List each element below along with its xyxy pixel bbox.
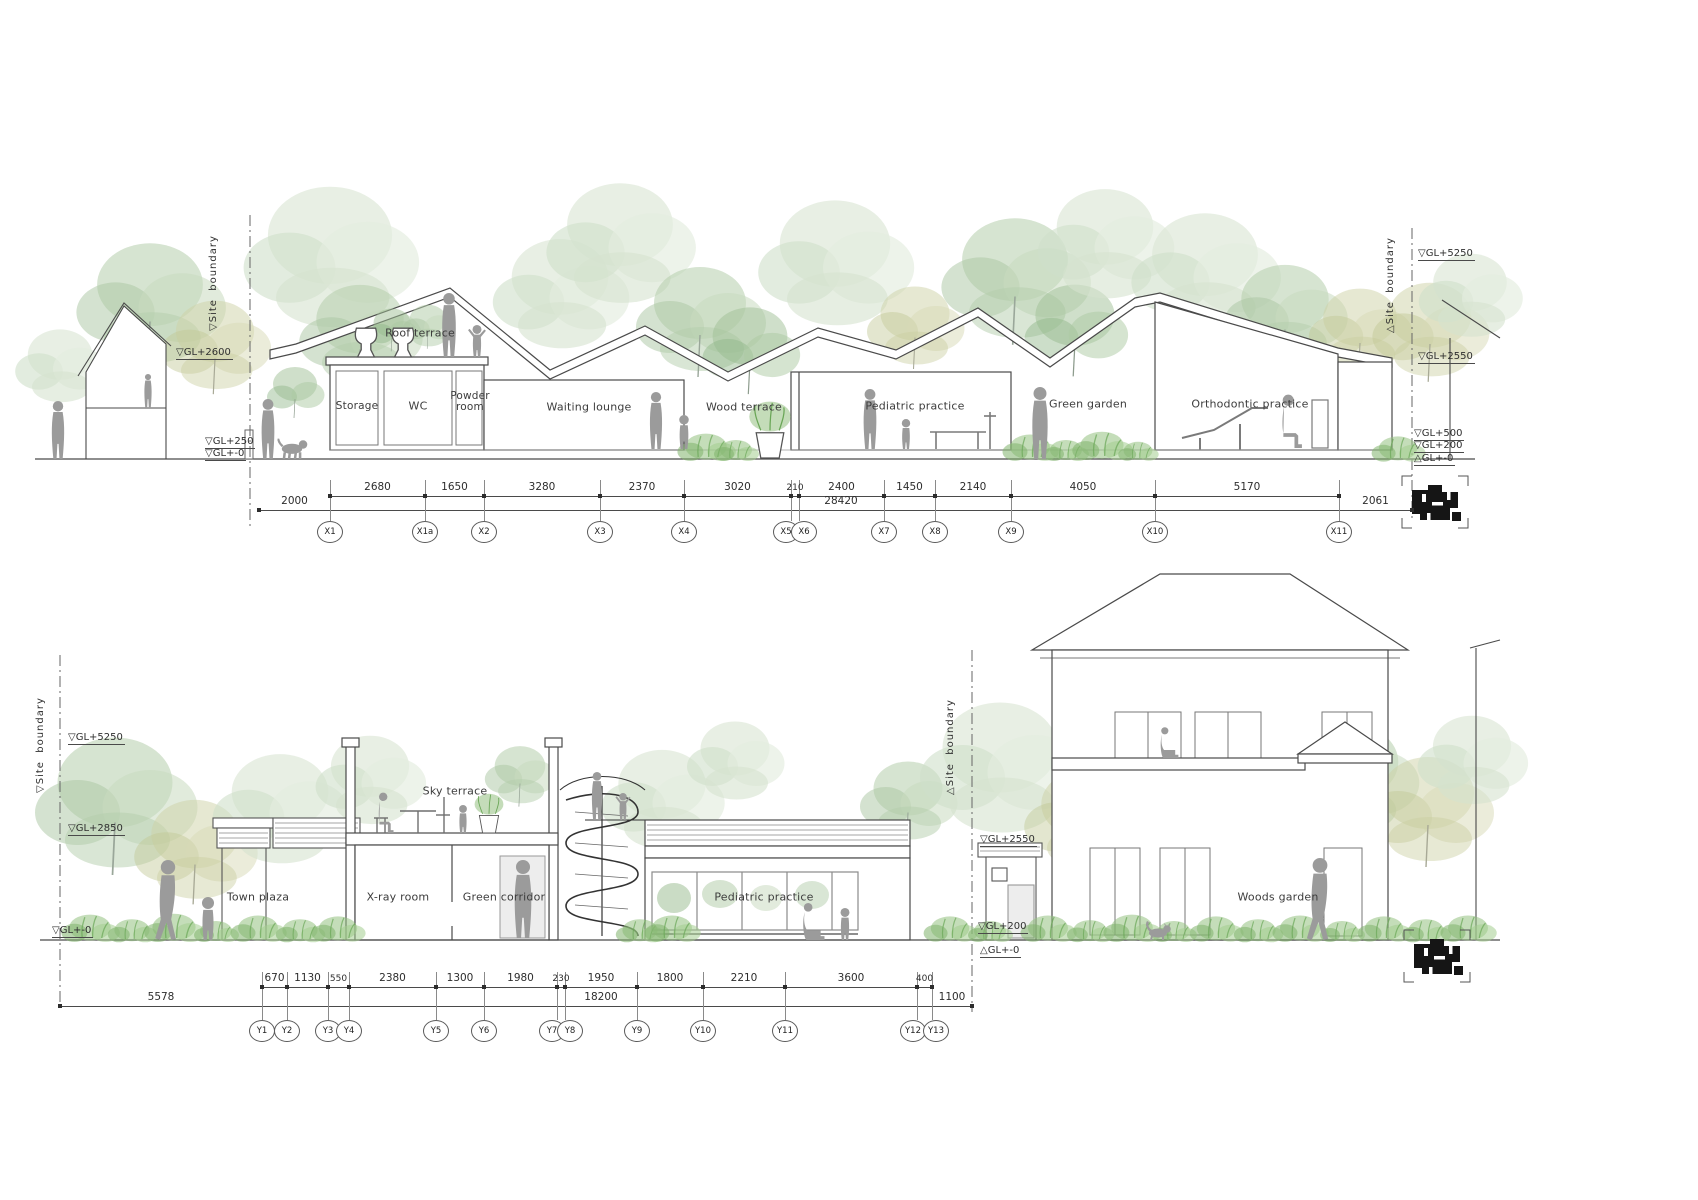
grid-extension-line (884, 480, 885, 521)
dimension-tick (933, 494, 937, 498)
grid-bubble: X2 (471, 521, 497, 543)
grid-bubble: Y2 (274, 1020, 300, 1042)
grid-bubble: Y11 (772, 1020, 798, 1042)
architectural-section-sheet: Roof terrace Storage WC Powder room Wait… (0, 0, 1698, 1200)
dimension-total-line (60, 1006, 972, 1007)
dimension-tick (1410, 508, 1414, 512)
dimension-tick (482, 494, 486, 498)
grid-bubble: Y8 (557, 1020, 583, 1042)
dimension-tick (285, 985, 289, 989)
dimension-tick (328, 494, 332, 498)
dimension-value: 400 (916, 974, 933, 984)
grid-bubble: Y4 (336, 1020, 362, 1042)
dimension-value: 3020 (724, 481, 751, 493)
grid-extension-line (1155, 480, 1156, 521)
dimension-tick (434, 985, 438, 989)
dimension-value: 3600 (838, 972, 865, 984)
dimension-value-total: 28420 (824, 495, 857, 507)
grid-extension-line (262, 972, 263, 1020)
dimension-value: 3280 (529, 481, 556, 493)
dimension-tick (682, 494, 686, 498)
grid-bubble: Y13 (923, 1020, 949, 1042)
grid-bubble: Y10 (690, 1020, 716, 1042)
dimension-value: 2370 (629, 481, 656, 493)
dimension-tick (563, 985, 567, 989)
dimension-tick (260, 985, 264, 989)
dimension-total-line (259, 510, 1412, 511)
dimension-value: 210 (786, 483, 803, 493)
dimension-value-right-offset: 2061 (1362, 495, 1389, 507)
grid-bubble: Y9 (624, 1020, 650, 1042)
dimension-tick (555, 985, 559, 989)
grid-bubble: Y6 (471, 1020, 497, 1042)
dimension-tick (423, 494, 427, 498)
dimension-tick (635, 985, 639, 989)
grid-extension-line (425, 480, 426, 521)
grid-extension-line (1011, 480, 1012, 521)
grid-bubble: Y5 (423, 1020, 449, 1042)
dimension-segment-line (262, 987, 932, 988)
grid-extension-line (684, 480, 685, 521)
grid-extension-line (328, 972, 329, 1020)
grid-extension-line (349, 972, 350, 1020)
grid-bubble: X3 (587, 521, 613, 543)
dimension-value: 1450 (896, 481, 923, 493)
dimension-value: 1130 (294, 972, 321, 984)
dimension-value: 1950 (588, 972, 615, 984)
dimension-tick (789, 494, 793, 498)
grid-bubble: X1 (317, 521, 343, 543)
dimension-value: 2380 (379, 972, 406, 984)
dimension-value: 2680 (364, 481, 391, 493)
grid-extension-line (484, 972, 485, 1020)
dimension-tick (930, 985, 934, 989)
grid-extension-line (287, 972, 288, 1020)
dimension-value: 5170 (1234, 481, 1261, 493)
dimension-tick (915, 985, 919, 989)
grid-bubble: X7 (871, 521, 897, 543)
grid-bubble: X1a (412, 521, 438, 543)
dimension-value-left-offset: 5578 (148, 991, 175, 1003)
dimension-tick (58, 1004, 62, 1008)
grid-extension-line (484, 480, 485, 521)
dimension-tick (1009, 494, 1013, 498)
grid-bubble: X10 (1142, 521, 1168, 543)
dimension-value: 4050 (1070, 481, 1097, 493)
grid-extension-line (935, 480, 936, 521)
dimension-value: 670 (264, 972, 284, 984)
dimension-tick (970, 1004, 974, 1008)
grid-bubble: X6 (791, 521, 817, 543)
dimension-tick (326, 985, 330, 989)
grid-extension-line (637, 972, 638, 1020)
dimension-tick (797, 494, 801, 498)
dimension-value: 2210 (731, 972, 758, 984)
dimension-tick (347, 985, 351, 989)
grid-extension-line (1339, 480, 1340, 521)
grid-bubble: X9 (998, 521, 1024, 543)
grid-bubble: X8 (922, 521, 948, 543)
dimension-tick (598, 494, 602, 498)
dimension-value-left-offset: 2000 (281, 495, 308, 507)
dimension-tick (257, 508, 261, 512)
dimension-value: 2400 (828, 481, 855, 493)
dimension-value: 1980 (507, 972, 534, 984)
grid-extension-line (330, 480, 331, 521)
dimension-value: 1800 (657, 972, 684, 984)
dimension-value: 230 (552, 974, 569, 984)
grid-extension-line (436, 972, 437, 1020)
dimension-value-right-offset: 1100 (939, 991, 966, 1003)
dimension-value: 1300 (447, 972, 474, 984)
dimension-tick (701, 985, 705, 989)
dimension-layer: X1X1aX2X3X4X5X6X7X8X9X10X112680165032802… (0, 0, 1698, 1200)
dimension-tick (482, 985, 486, 989)
dimension-tick (882, 494, 886, 498)
dimension-tick (1337, 494, 1341, 498)
dimension-value: 2140 (960, 481, 987, 493)
dimension-tick (1153, 494, 1157, 498)
dimension-value: 1650 (441, 481, 468, 493)
dimension-tick (783, 985, 787, 989)
grid-bubble: X11 (1326, 521, 1352, 543)
dimension-value-total: 18200 (584, 991, 617, 1003)
grid-bubble: X4 (671, 521, 697, 543)
dimension-value: 550 (330, 974, 347, 984)
grid-extension-line (785, 972, 786, 1020)
grid-extension-line (703, 972, 704, 1020)
grid-extension-line (600, 480, 601, 521)
grid-bubble: Y1 (249, 1020, 275, 1042)
